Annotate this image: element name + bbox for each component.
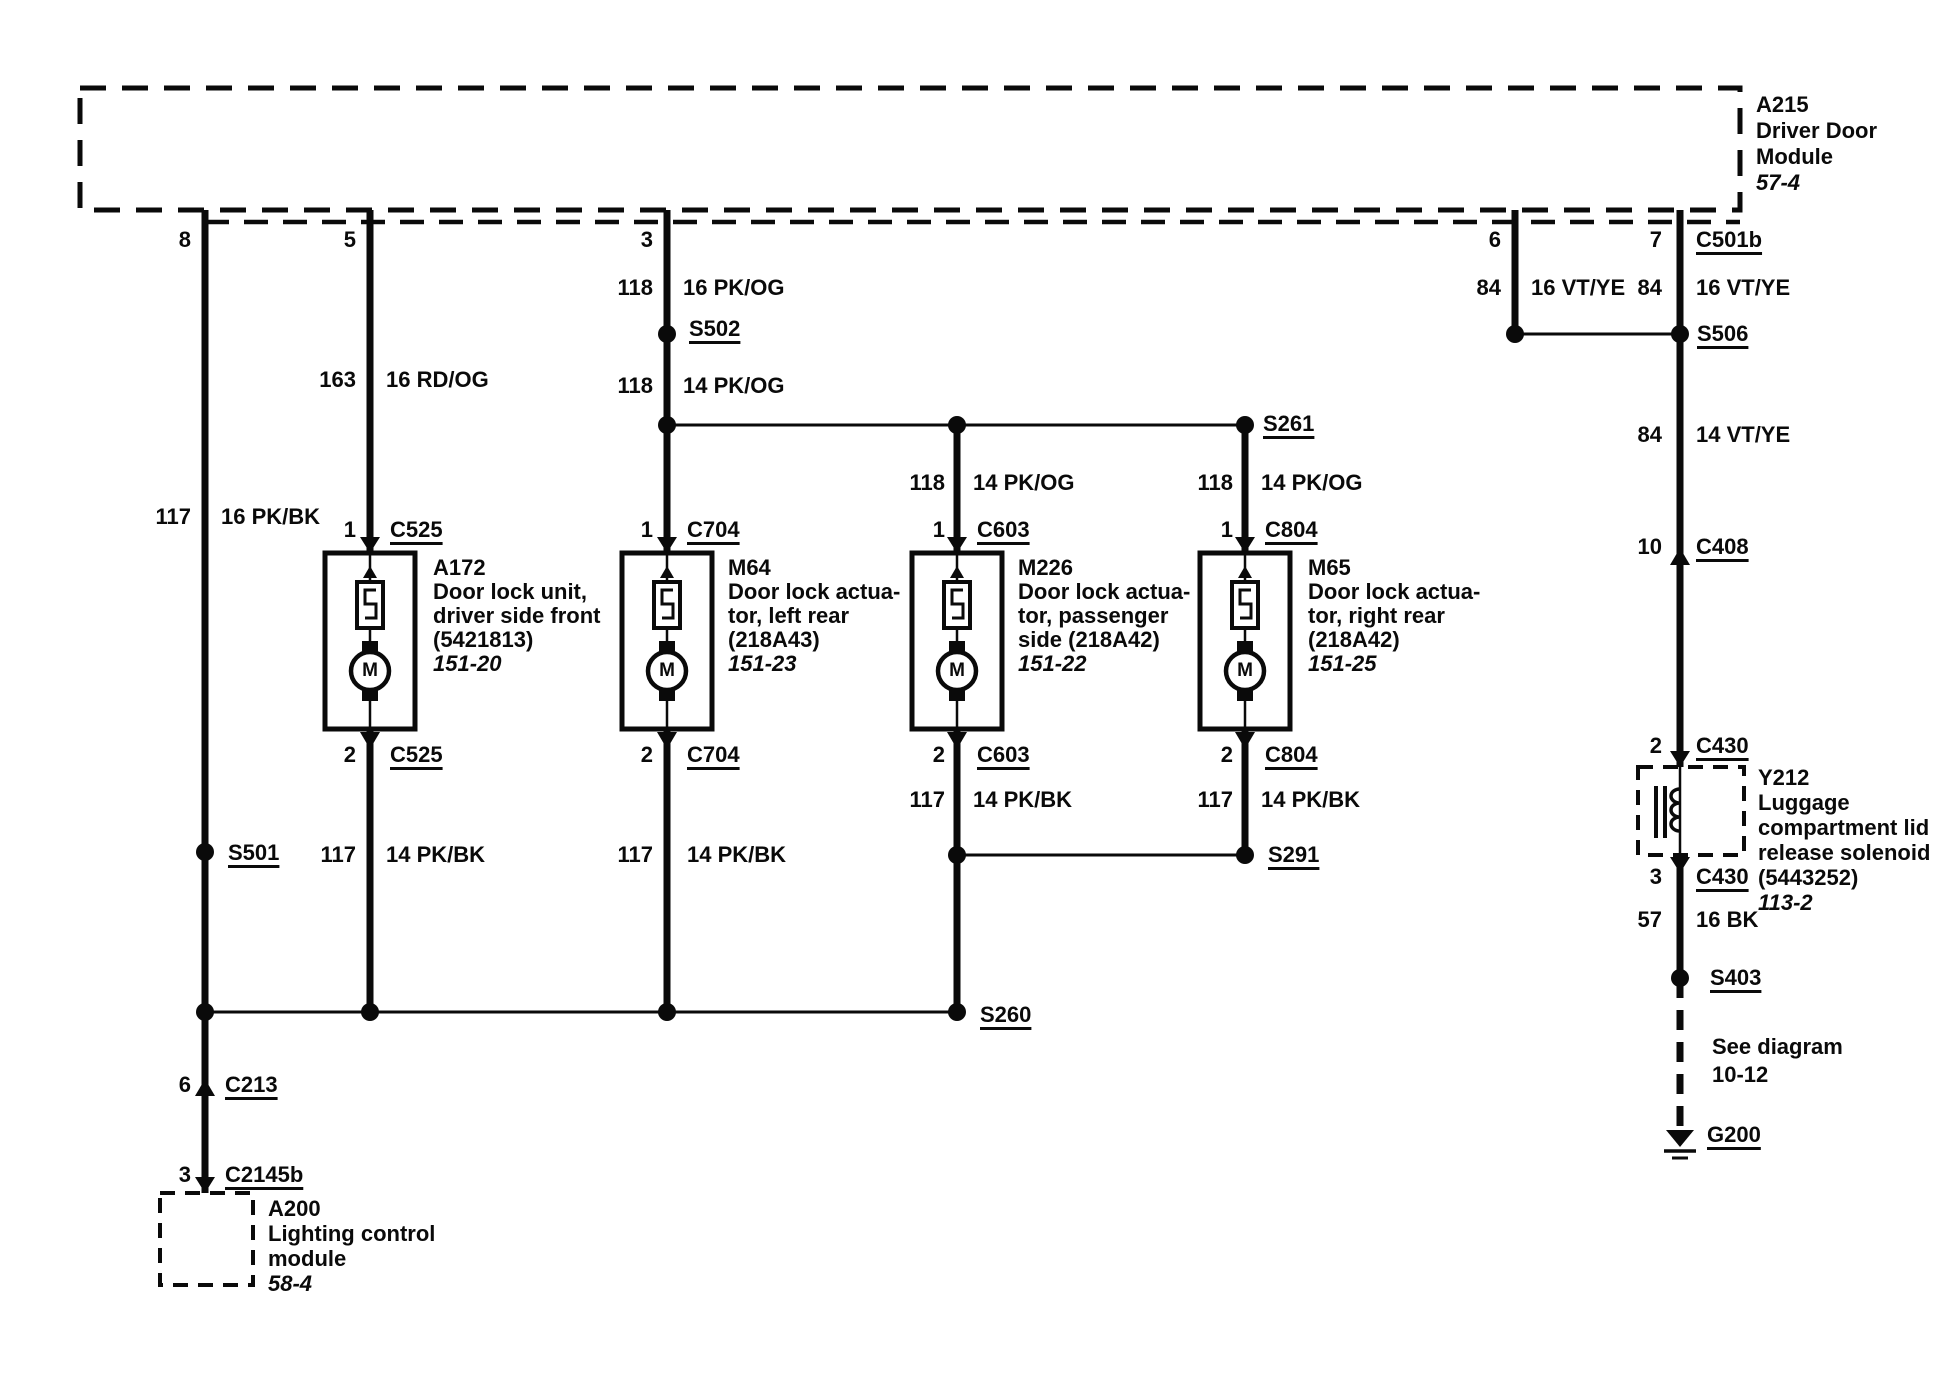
- component-line: tor, passenger: [1018, 604, 1190, 628]
- connector-c430: C430: [1696, 864, 1749, 890]
- wire-color: 14 PK/OG: [683, 373, 784, 399]
- splice-s261: S261: [1263, 411, 1314, 437]
- pin-2: 2: [292, 742, 356, 768]
- circuit-number: 117: [881, 787, 945, 813]
- circuit-number: 117: [1169, 787, 1233, 813]
- circuit-number: 118: [1169, 470, 1233, 496]
- circuit-number: 118: [881, 470, 945, 496]
- note-line: 10-12: [1712, 1061, 1843, 1089]
- component-line: (218A42): [1308, 628, 1480, 652]
- component-id: M226: [1018, 556, 1190, 580]
- component-line: Door lock actua-: [1308, 580, 1480, 604]
- component-page-ref: 113-2: [1758, 890, 1930, 915]
- connector-c704: C704: [687, 742, 740, 768]
- solenoid-y212: [1638, 767, 1744, 855]
- component-line: (218A43): [728, 628, 900, 652]
- component-line: Door lock actua-: [1018, 580, 1190, 604]
- component-line: module: [268, 1246, 435, 1271]
- component-line: tor, left rear: [728, 604, 900, 628]
- connector-c501b: C501b: [1696, 227, 1762, 253]
- pin-8: 8: [127, 227, 191, 253]
- pin-5: 5: [292, 227, 356, 253]
- component-label-m65: M65 Door lock actua- tor, right rear (21…: [1308, 556, 1480, 676]
- connector-c603: C603: [977, 517, 1030, 543]
- pin-2: 2: [1598, 733, 1662, 759]
- wire-color: 14 PK/OG: [973, 470, 1074, 496]
- connector-c704: C704: [687, 517, 740, 543]
- pin-6: 6: [127, 1072, 191, 1098]
- connector-c804: C804: [1265, 517, 1318, 543]
- component-page-ref: 151-22: [1018, 652, 1190, 676]
- connector-c213: C213: [225, 1072, 278, 1098]
- component-id: A200: [268, 1196, 435, 1221]
- component-id: A172: [433, 556, 600, 580]
- circuit-number: 84: [1598, 275, 1662, 301]
- circuit-number: 84: [1598, 422, 1662, 448]
- splice-s403: S403: [1710, 965, 1761, 991]
- wire-color: 16 RD/OG: [386, 367, 489, 393]
- wire-color: 14 PK/BK: [1261, 787, 1360, 813]
- component-line: (5443252): [1758, 865, 1930, 890]
- module-a215-outline: [80, 88, 1740, 210]
- motor-icon: M: [1230, 660, 1260, 682]
- circuit-number: 117: [589, 842, 653, 868]
- module-a215-label: A215 Driver Door Module 57-4: [1756, 92, 1877, 196]
- component-line: driver side front: [433, 604, 600, 628]
- component-line: Door lock unit,: [433, 580, 600, 604]
- component-label-a172: A172 Door lock unit, driver side front (…: [433, 556, 600, 676]
- module-page-ref: 57-4: [1756, 170, 1877, 196]
- wire-color: 14 PK/BK: [386, 842, 485, 868]
- wire-color: 14 PK/BK: [687, 842, 786, 868]
- connector-c525: C525: [390, 742, 443, 768]
- ground-symbol-g200: [1664, 1130, 1696, 1158]
- ground-g200-label: G200: [1707, 1122, 1761, 1148]
- connector-c2145b: C2145b: [225, 1162, 303, 1188]
- pin-1: 1: [292, 517, 356, 543]
- motor-icon: M: [652, 660, 682, 682]
- wire-color: 16 PK/OG: [683, 275, 784, 301]
- wire-color: 14 PK/BK: [973, 787, 1072, 813]
- pin-3: 3: [1598, 864, 1662, 890]
- pin-10: 10: [1598, 534, 1662, 560]
- wire-color: 14 PK/OG: [1261, 470, 1362, 496]
- module-line: Module: [1756, 144, 1877, 170]
- component-id: M65: [1308, 556, 1480, 580]
- splice-s260: S260: [980, 1002, 1031, 1028]
- circuit-number: 84: [1437, 275, 1501, 301]
- component-page-ref: 151-20: [433, 652, 600, 676]
- circuit-number: 118: [589, 275, 653, 301]
- pin-1: 1: [589, 517, 653, 543]
- splice-s501: S501: [228, 840, 279, 866]
- pin-6: 6: [1437, 227, 1501, 253]
- circuit-number: 57: [1598, 907, 1662, 933]
- motor-icon: M: [355, 660, 385, 682]
- component-line: tor, right rear: [1308, 604, 1480, 628]
- note-line: See diagram: [1712, 1033, 1843, 1061]
- pin-1: 1: [1169, 517, 1233, 543]
- wire-color: 14 VT/YE: [1696, 422, 1790, 448]
- connector-c430: C430: [1696, 733, 1749, 759]
- component-line: Lighting control: [268, 1221, 435, 1246]
- splice-s291: S291: [1268, 842, 1319, 868]
- component-label-a200: A200 Lighting control module 58-4: [268, 1196, 435, 1296]
- component-id: M64: [728, 556, 900, 580]
- component-line: (5421813): [433, 628, 600, 652]
- component-line: compartment lid: [1758, 815, 1930, 840]
- connector-c603: C603: [977, 742, 1030, 768]
- pin-2: 2: [1169, 742, 1233, 768]
- see-diagram-note: See diagram 10-12: [1712, 1033, 1843, 1089]
- circuit-number: 117: [127, 504, 191, 530]
- connector-c525: C525: [390, 517, 443, 543]
- component-page-ref: 58-4: [268, 1271, 435, 1296]
- component-id: Y212: [1758, 765, 1930, 790]
- component-label-m226: M226 Door lock actua- tor, passenger sid…: [1018, 556, 1190, 676]
- circuit-number: 117: [292, 842, 356, 868]
- wiring-diagram-page: A215 Driver Door Module 57-4 8 5 3 6 7 C…: [0, 0, 1950, 1376]
- wire-color: 16 BK: [1696, 907, 1758, 933]
- component-line: release solenoid: [1758, 840, 1930, 865]
- component-label-y212: Y212 Luggage compartment lid release sol…: [1758, 765, 1930, 915]
- wire-color: 16 VT/YE: [1696, 275, 1790, 301]
- component-page-ref: 151-23: [728, 652, 900, 676]
- connector-c408: C408: [1696, 534, 1749, 560]
- pin-2: 2: [881, 742, 945, 768]
- pin-2: 2: [589, 742, 653, 768]
- pin-3: 3: [127, 1162, 191, 1188]
- component-line: side (218A42): [1018, 628, 1190, 652]
- component-line: Luggage: [1758, 790, 1930, 815]
- component-line: Door lock actua-: [728, 580, 900, 604]
- component-page-ref: 151-25: [1308, 652, 1480, 676]
- motor-icon: M: [942, 660, 972, 682]
- circuit-number: 118: [589, 373, 653, 399]
- circuit-number: 163: [292, 367, 356, 393]
- module-line: Driver Door: [1756, 118, 1877, 144]
- splice-s502: S502: [689, 316, 740, 342]
- pin-1: 1: [881, 517, 945, 543]
- module-id: A215: [1756, 92, 1877, 118]
- pin-7: 7: [1598, 227, 1662, 253]
- pin-3: 3: [589, 227, 653, 253]
- component-label-m64: M64 Door lock actua- tor, left rear (218…: [728, 556, 900, 676]
- connector-c804: C804: [1265, 742, 1318, 768]
- component-box-a200: [160, 1193, 253, 1285]
- splice-s506: S506: [1697, 321, 1748, 347]
